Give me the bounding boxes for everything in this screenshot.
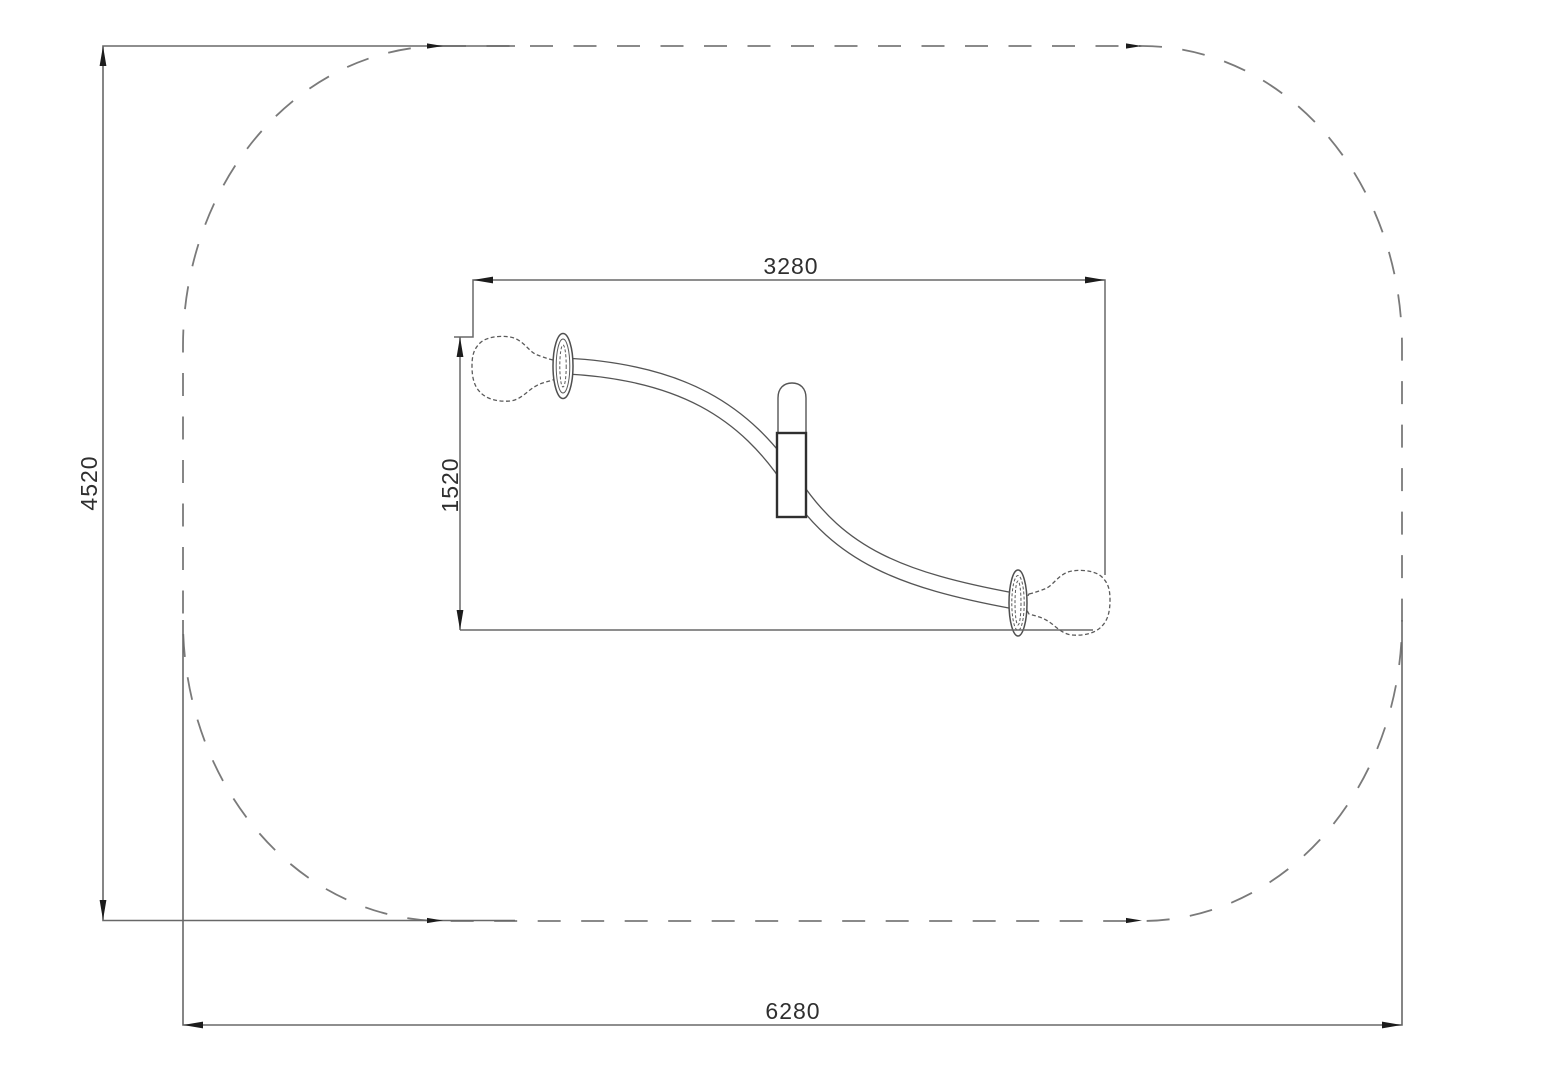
tangent-tick-bottom-left — [427, 918, 443, 923]
arrow-up — [457, 337, 464, 357]
label-overall-depth: 4520 — [76, 455, 102, 510]
arrow-left — [183, 1022, 203, 1029]
dimension-6280-lines — [183, 620, 1402, 1025]
label-equipment-length: 3280 — [763, 253, 818, 279]
arrow-up — [100, 46, 107, 66]
drawing-canvas: 4520 6280 3280 1520 — [0, 0, 1565, 1080]
arrow-right — [1382, 1022, 1402, 1029]
arrow-down — [457, 610, 464, 630]
left-seat-end — [472, 336, 556, 401]
arrow-right — [1085, 277, 1105, 284]
tangent-tick-top-right — [1126, 43, 1142, 48]
plan-drawing: 4520 6280 3280 1520 — [0, 0, 1565, 1080]
label-overall-width: 6280 — [765, 998, 820, 1024]
dimension-4520-arrows — [100, 43, 1142, 923]
equipment-top-view — [472, 334, 1110, 637]
right-disc — [1009, 570, 1027, 636]
label-equipment-width: 1520 — [437, 457, 463, 512]
dimension-6280 — [183, 620, 1402, 1025]
spring-capsule — [778, 383, 806, 433]
tangent-tick-top-left — [427, 43, 443, 48]
arrow-left — [473, 277, 493, 284]
tangent-tick-bottom-right — [1126, 918, 1142, 923]
left-disc — [553, 334, 573, 399]
base-rectangle — [777, 433, 806, 517]
right-seat-end — [1026, 570, 1110, 635]
arrow-down — [100, 900, 107, 920]
